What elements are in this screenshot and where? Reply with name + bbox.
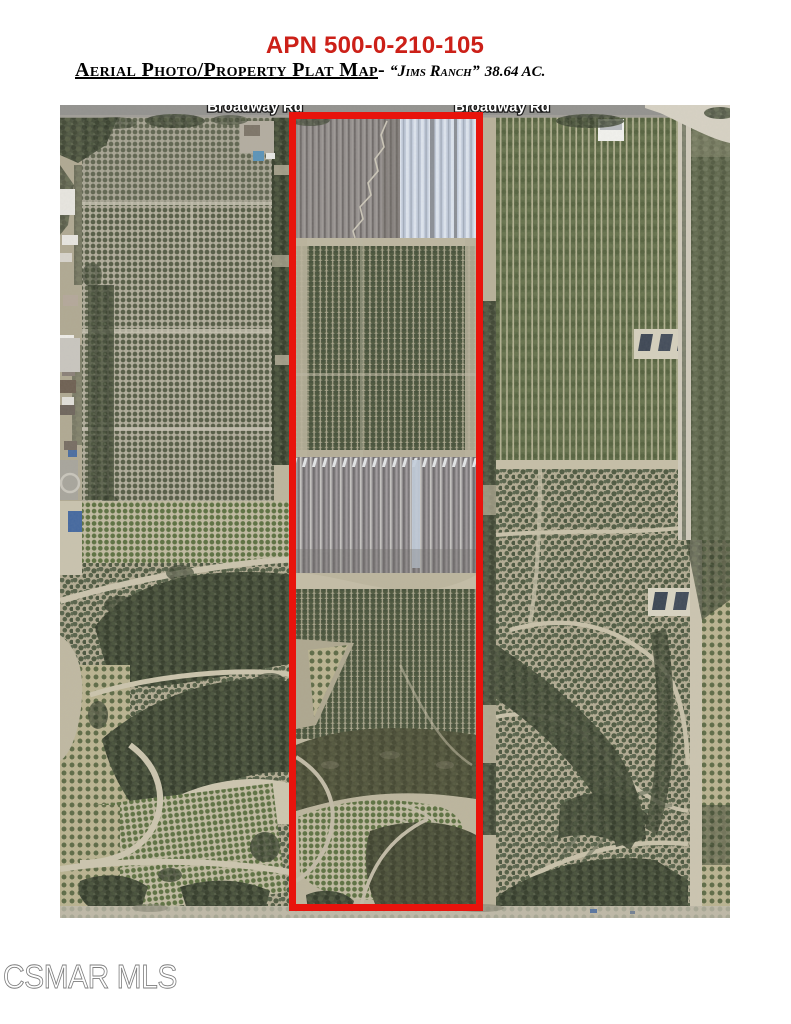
svg-text:Broadway Rd: Broadway Rd — [207, 105, 303, 116]
